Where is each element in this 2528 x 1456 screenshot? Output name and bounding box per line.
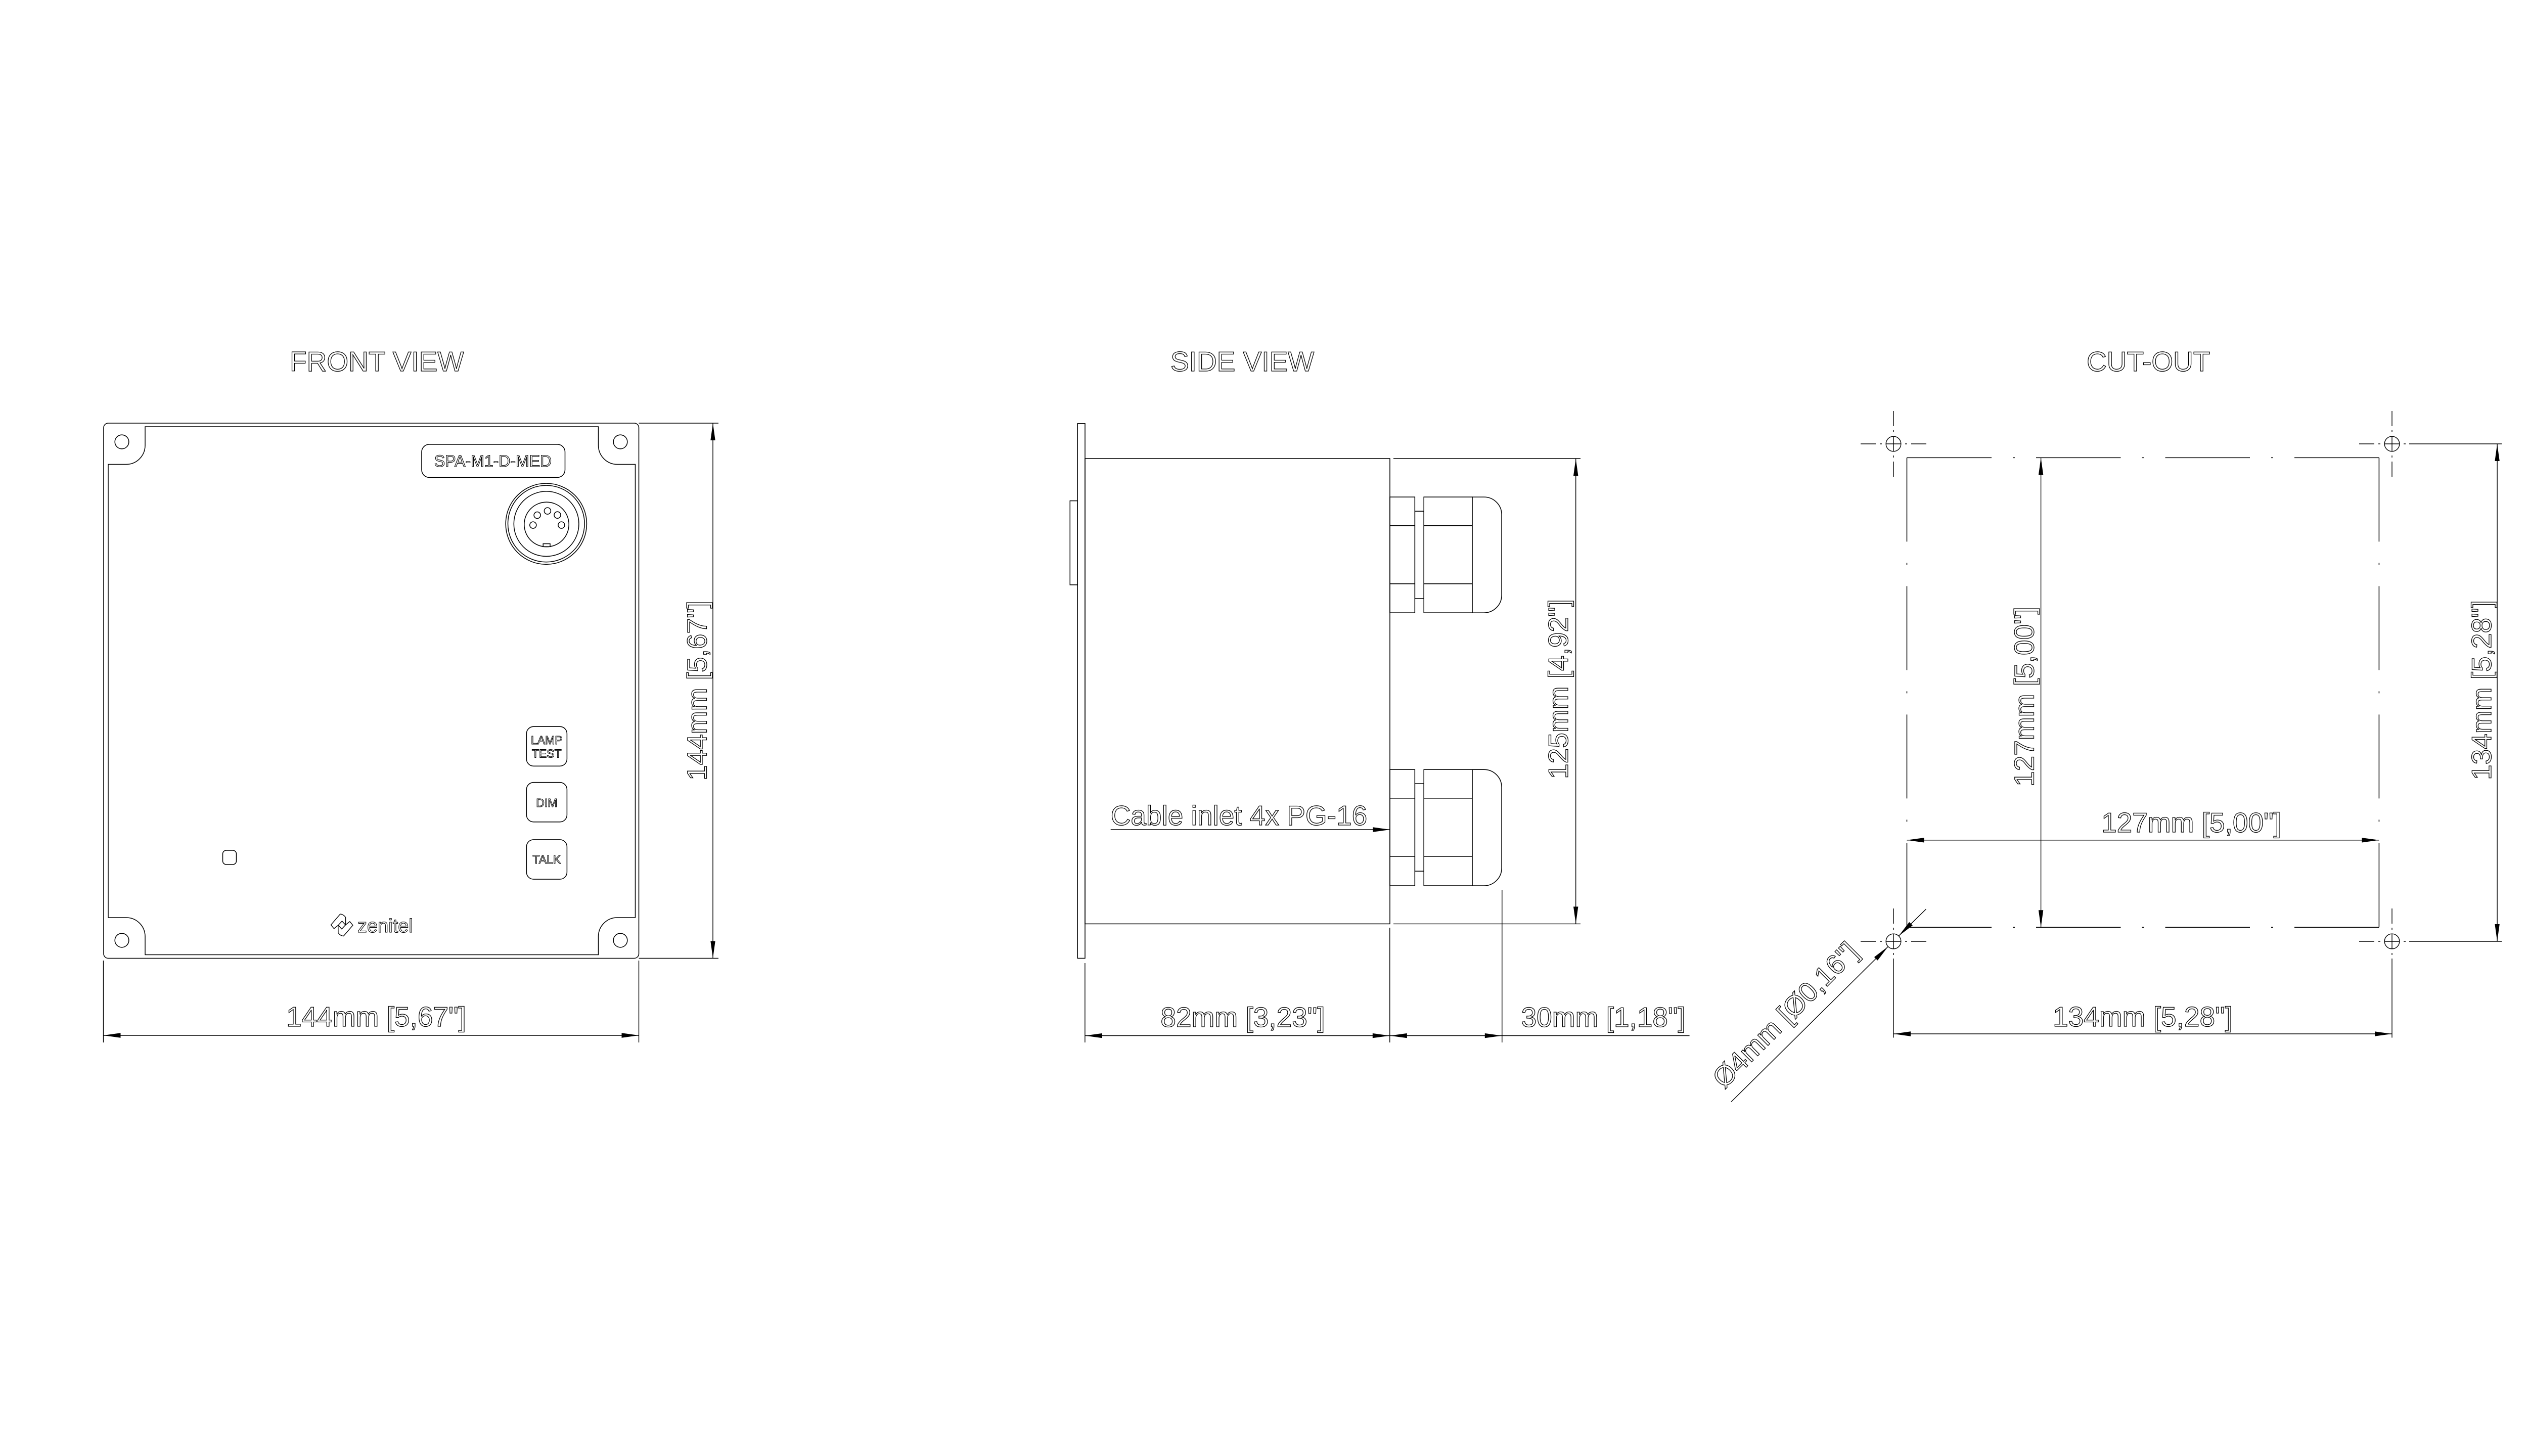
svg-text:FRONT VIEW: FRONT VIEW [290, 346, 464, 377]
svg-text:DIM: DIM [536, 796, 557, 809]
svg-text:TALK: TALK [532, 853, 561, 866]
svg-text:125mm [4,92"]: 125mm [4,92"] [1543, 599, 1574, 779]
svg-text:134mm [5,28"]: 134mm [5,28"] [2466, 600, 2497, 780]
svg-text:Cable inlet 4x PG-16: Cable inlet 4x PG-16 [1111, 800, 1368, 831]
svg-text:144mm [5,67"]: 144mm [5,67"] [682, 601, 713, 781]
svg-text:30mm [1,18"]: 30mm [1,18"] [1521, 1002, 1686, 1033]
svg-text:SPA-M1-D-MED: SPA-M1-D-MED [434, 452, 552, 470]
svg-text:TEST: TEST [532, 747, 562, 760]
svg-text:SIDE VIEW: SIDE VIEW [1170, 346, 1314, 377]
svg-text:zenitel: zenitel [357, 916, 413, 937]
svg-text:CUT-OUT: CUT-OUT [2087, 346, 2210, 377]
svg-text:127mm [5,00"]: 127mm [5,00"] [2101, 807, 2281, 838]
svg-text:127mm [5,00"]: 127mm [5,00"] [2009, 607, 2040, 787]
svg-text:144mm [5,67"]: 144mm [5,67"] [286, 1001, 466, 1032]
svg-text:82mm [3,23"]: 82mm [3,23"] [1160, 1002, 1325, 1033]
svg-text:134mm [5,28"]: 134mm [5,28"] [2053, 1001, 2233, 1032]
svg-text:LAMP: LAMP [531, 734, 563, 747]
